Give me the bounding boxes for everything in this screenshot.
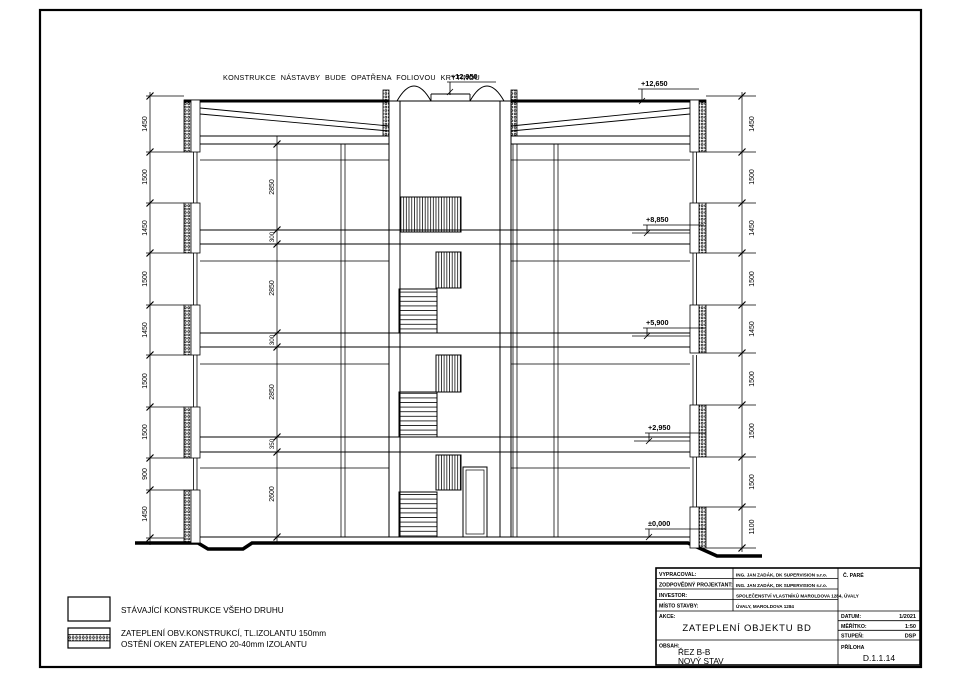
titleblock-pare: Č. PARÉ xyxy=(843,571,864,579)
staircase xyxy=(399,197,487,537)
titleblock-label-meritko: MĚŘÍTKO: xyxy=(841,622,867,630)
elevation-level-4: +8,850 xyxy=(646,215,669,224)
dim-label: 1450 xyxy=(142,322,149,338)
dim-label: 2600 xyxy=(269,486,276,502)
legend-label-existing: STÁVAJÍCÍ KONSTRUKCE VŠEHO DRUHU xyxy=(121,605,284,615)
elevation-level-3: +5,900 xyxy=(646,318,669,327)
titleblock-label-misto: MÍSTO STAVBY: xyxy=(659,602,699,610)
dim-label: 1450 xyxy=(142,506,149,522)
titleblock-value-vypracoval: ING. JAN ZADÁK, DK SUPERVISION s.r.o. xyxy=(736,572,827,578)
titleblock-label-investor: INVESTOR: xyxy=(659,593,687,599)
titleblock-project-title: ZATEPLENÍ OBJEKTU BD xyxy=(682,623,811,634)
dim-label: 1450 xyxy=(142,220,149,236)
roof-slab xyxy=(200,136,690,144)
legend-label-insulation-1: ZATEPLENÍ OBV.KONSTRUKCÍ, TL.IZOLANTU 15… xyxy=(121,628,326,638)
elevation-level-2: +2,950 xyxy=(648,423,671,432)
dim-label: 1450 xyxy=(749,220,756,236)
titleblock-value-investor: SPOLEČENSTVÍ VLASTNÍKŮ MAROLDOVA 1284, Ú… xyxy=(736,592,859,599)
titleblock-value-projektant: ING. JAN ZADÁK, DK SUPERVISION s.r.o. xyxy=(736,582,827,588)
facade-left xyxy=(184,100,200,543)
dim-label: 1450 xyxy=(142,116,149,132)
dim-label: 1500 xyxy=(749,169,756,185)
titleblock-label-stupen: STUPEŇ: xyxy=(841,632,864,640)
legend-swatch-existing xyxy=(68,597,110,621)
roof-arch-left xyxy=(397,86,431,101)
roof-slope-left xyxy=(200,108,389,131)
roof-annotation: KONSTRUKCE NÁSTAVBY BUDE OPATŘENA FOLIOV… xyxy=(223,73,480,82)
dim-label: 1500 xyxy=(749,423,756,439)
stair-flight-2 xyxy=(399,392,437,437)
terrain-line xyxy=(135,543,762,556)
titleblock-drawing-name-1: ŘEZ B-B xyxy=(678,647,711,657)
facade-right xyxy=(690,100,706,548)
stair-railing-2 xyxy=(436,355,461,392)
roof-slope-right xyxy=(511,108,690,131)
dim-label: 350 xyxy=(269,438,276,449)
dim-label: 300 xyxy=(269,334,276,345)
titleblock-label-vypracoval: VYPRACOVAL: xyxy=(659,572,697,578)
elevation-roof-edge: +12,650 xyxy=(641,79,668,88)
title-block: VYPRACOVAL: ING. JAN ZADÁK, DK SUPERVISI… xyxy=(656,568,920,666)
titleblock-value-misto: ÚVALY, MAROLDOVA 1284 xyxy=(736,603,794,609)
dim-label: 2850 xyxy=(269,280,276,296)
elevation-level-0: ±0,000 xyxy=(648,519,670,528)
dim-label: 300 xyxy=(269,231,276,242)
dim-label: 1500 xyxy=(749,371,756,387)
dim-label: 1100 xyxy=(749,519,756,534)
dim-label: 1500 xyxy=(142,169,149,185)
titleblock-drawing-number: D.1.1.14 xyxy=(863,653,895,663)
titleblock-label-datum: DATUM: xyxy=(841,614,861,620)
dim-label: 1500 xyxy=(142,424,149,440)
section-drawing: 1450 1500 1450 1500 1450 1500 1500 900 1… xyxy=(0,0,960,678)
dim-label: 900 xyxy=(142,468,149,480)
stair-railing-4 xyxy=(400,197,461,232)
entrance-door xyxy=(463,467,487,537)
titleblock-value-meritko: 1:50 xyxy=(905,624,916,630)
dim-label: 1500 xyxy=(142,271,149,287)
titleblock-label-akce: AKCE: xyxy=(659,614,676,620)
dim-label: 1450 xyxy=(749,116,756,132)
stair-railing-3 xyxy=(436,252,461,288)
titleblock-label-obsah: OBSAH: xyxy=(659,644,680,650)
stair-railing-1 xyxy=(436,455,461,490)
dimension-labels-left: 1450 1500 1450 1500 1450 1500 1500 900 1… xyxy=(142,116,149,522)
titleblock-value-datum: 1/2021 xyxy=(899,614,916,620)
titleblock-drawing-name-2: NOVÝ STAV xyxy=(678,656,724,666)
drawing-sheet: { "drawing": { "annotation_roof": "KONST… xyxy=(0,0,960,678)
dimension-chain-left xyxy=(146,92,184,545)
legend-label-insulation-2: OSTĚNÍ OKEN ZATEPLENO 20-40mm IZOLANTU xyxy=(121,639,307,649)
dim-label: 1500 xyxy=(749,474,756,490)
dim-label: 2850 xyxy=(269,384,276,400)
legend: STÁVAJÍCÍ KONSTRUKCE VŠEHO DRUHU ZATEPLE… xyxy=(68,597,326,649)
dim-label: 1500 xyxy=(749,271,756,287)
stair-flight-3 xyxy=(399,289,437,333)
stair-flight-1 xyxy=(399,492,437,537)
legend-swatch-insulation xyxy=(68,628,110,648)
dim-label: 2850 xyxy=(269,179,276,195)
titleblock-label-projektant: ZODPOVĚDNÝ PROJEKTANT: xyxy=(659,581,733,589)
dim-label: 1500 xyxy=(142,373,149,389)
roof-arch-right xyxy=(470,86,504,101)
dimension-labels-right: 1450 1500 1450 1500 1450 1500 1500 1500 … xyxy=(749,116,756,534)
titleblock-value-stupen: DSP xyxy=(905,634,917,640)
dim-label: 1450 xyxy=(749,321,756,337)
titleblock-label-priloha: PŘÍLOHA xyxy=(841,643,865,651)
